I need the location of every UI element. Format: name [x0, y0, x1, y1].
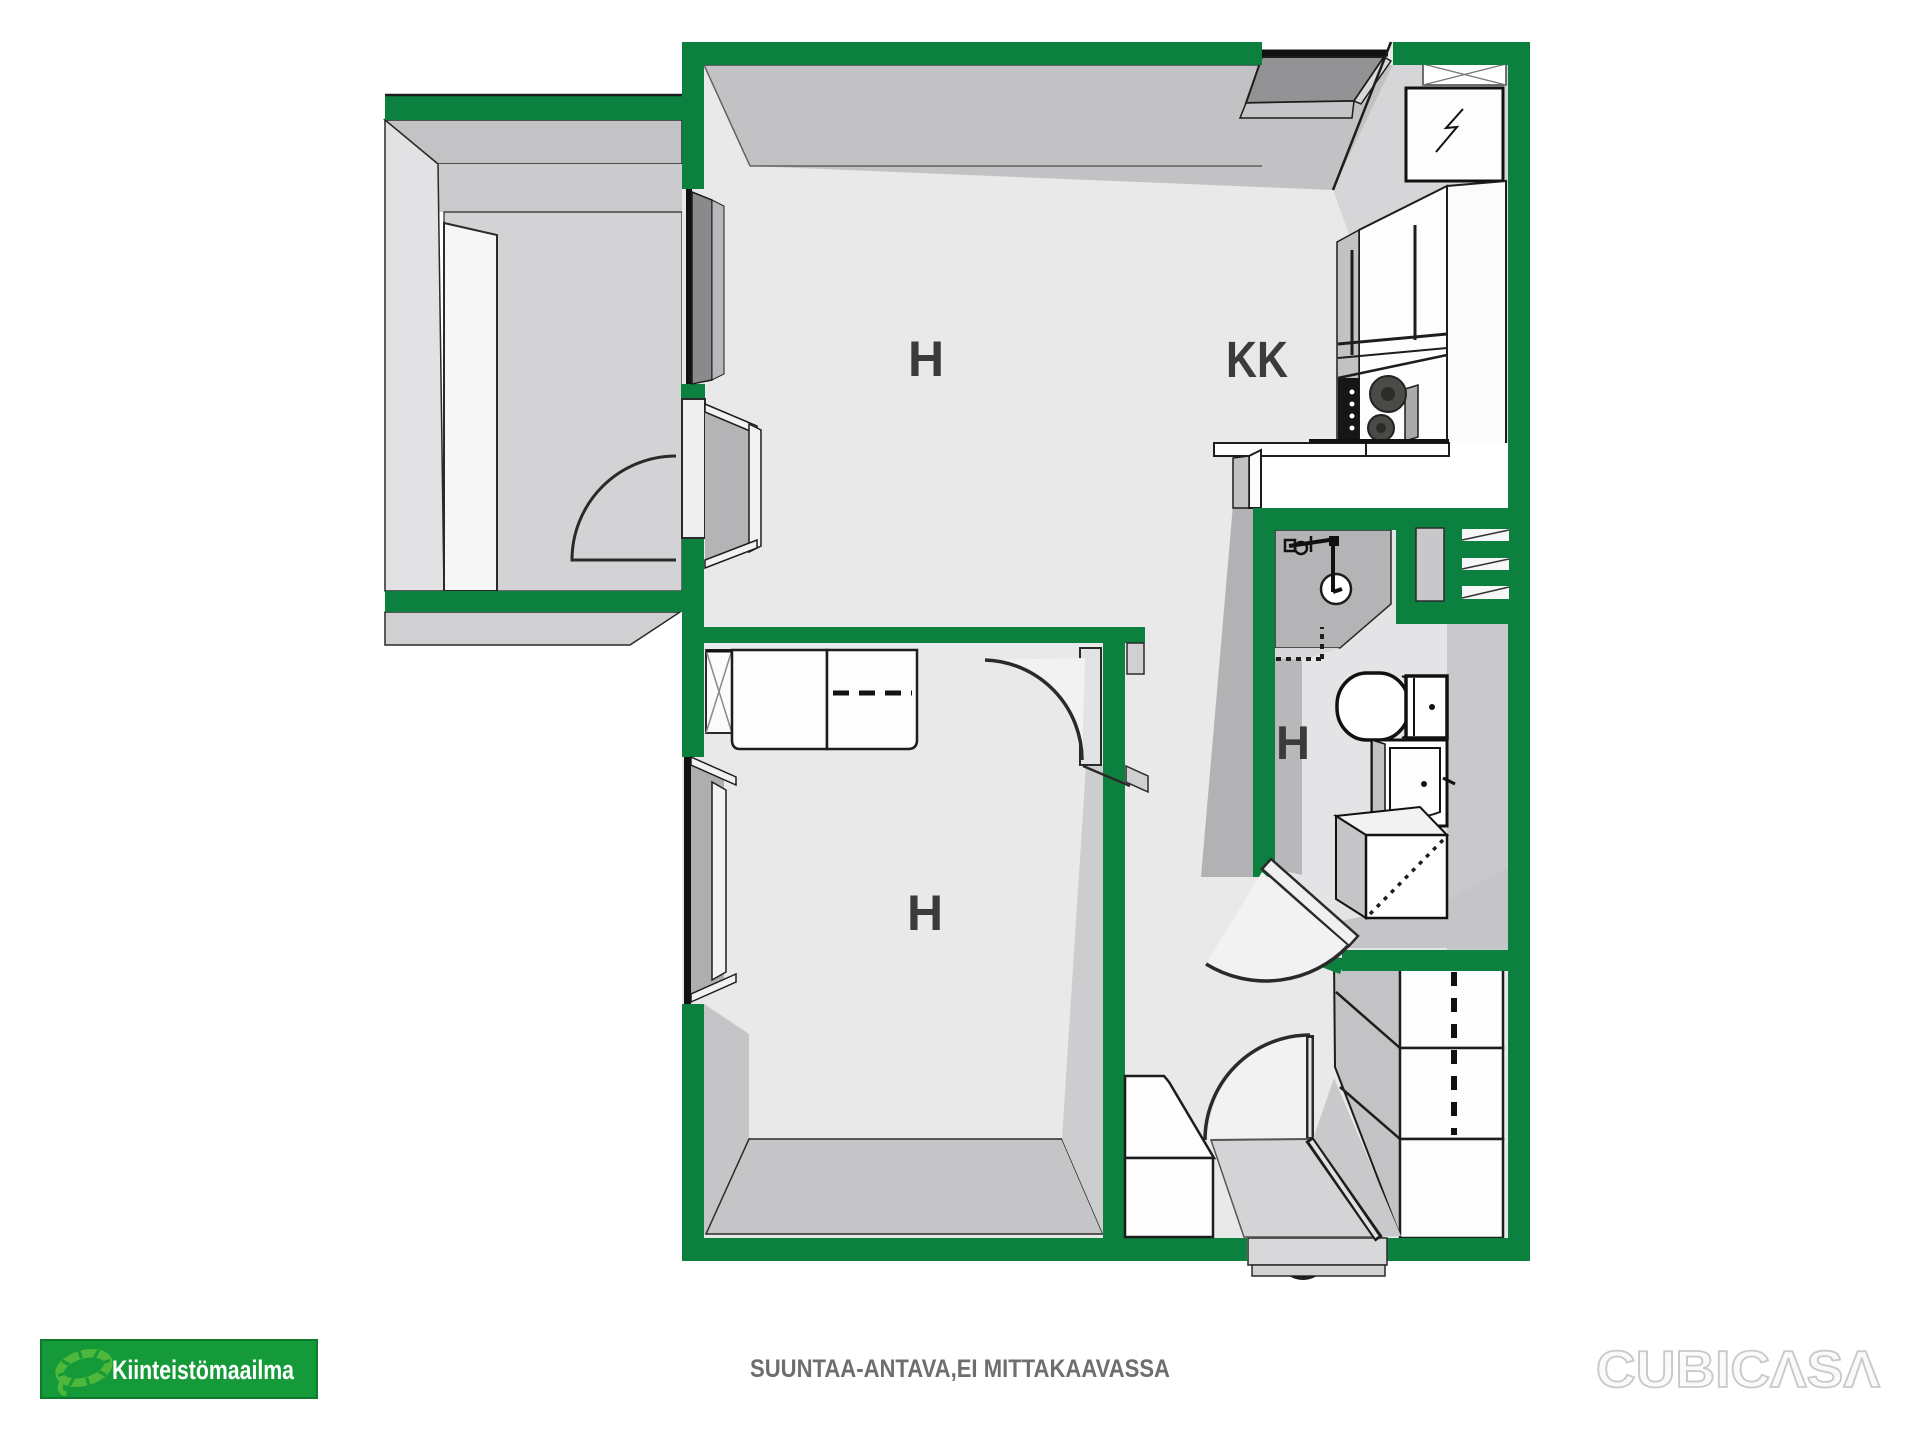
- svg-text:Kiinteistömaailma: Kiinteistömaailma: [112, 1355, 295, 1385]
- svg-text:KK: KK: [1226, 331, 1288, 388]
- svg-text:H: H: [908, 331, 944, 387]
- svg-text:H: H: [1276, 716, 1310, 769]
- svg-text:SUUNTAA-ANTAVA,EI MITTAKAAVASS: SUUNTAA-ANTAVA,EI MITTAKAAVASSA: [750, 1355, 1170, 1383]
- svg-text:H: H: [907, 885, 943, 941]
- svg-text:CUBICΛSΛ: CUBICΛSΛ: [1596, 1341, 1880, 1399]
